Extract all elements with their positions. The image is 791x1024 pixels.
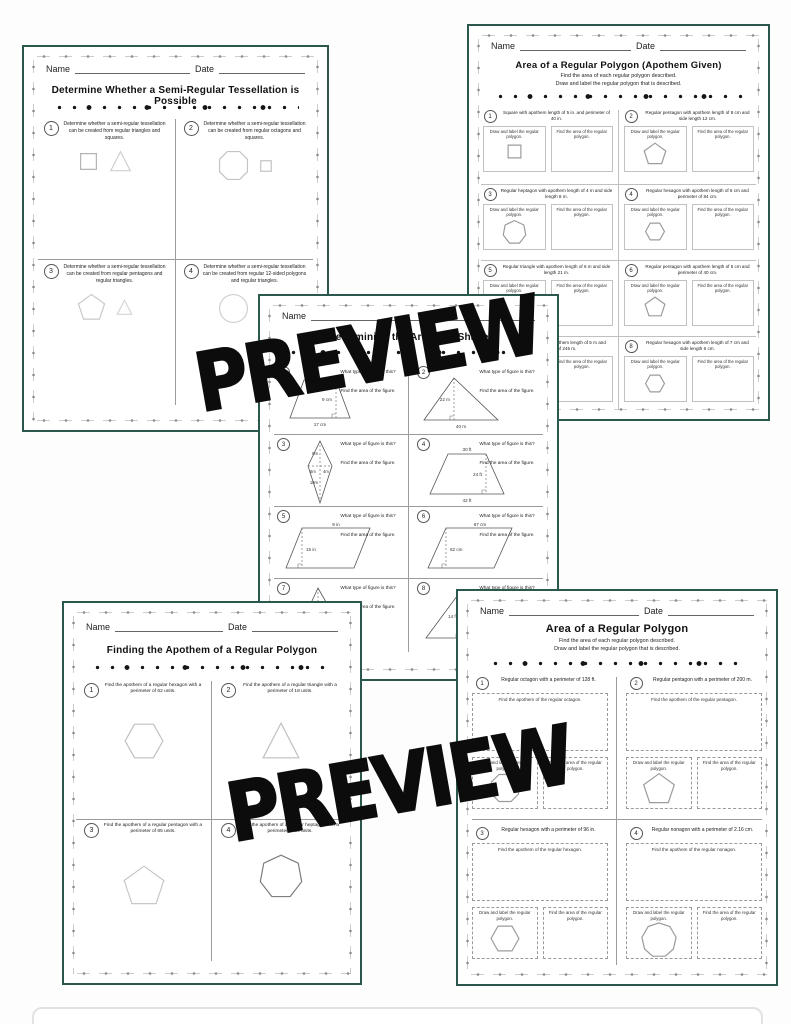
measure-label: 42 ft <box>463 498 473 503</box>
question-text: Square with apothem length of 5 in. and … <box>501 110 613 122</box>
pentagon-shape <box>77 293 106 322</box>
question-text: Regular hexagon with a perimeter of 96 i… <box>493 827 605 834</box>
next-page-edge <box>32 1007 763 1024</box>
shape-group <box>37 293 173 322</box>
question-number: 6 <box>625 264 638 277</box>
measure-label: 17 cm <box>314 422 327 427</box>
ornament-border-right <box>755 35 762 410</box>
dotted-divider <box>493 92 744 101</box>
pentagon-shape <box>643 142 667 166</box>
question-text: Regular hexagon with apothem length of 6… <box>642 188 754 200</box>
question-1: 1 Find the apothem of a regular hexagon … <box>76 683 211 815</box>
question-text: Determine whether a semi-regular tessell… <box>203 264 307 284</box>
question-3: 3 6m 6m 4m 10m What type of figure is th… <box>272 436 406 506</box>
find-box: Find the area of the regular polygon. <box>692 280 755 326</box>
question-text: Find the apothem of a regular pentagon w… <box>103 823 203 836</box>
name-date-row: Name Date <box>86 621 338 632</box>
name-date-row: Name Date <box>491 40 746 51</box>
draw-label: Draw and label the regular polygon. <box>629 359 682 370</box>
page-title: Area of a Regular Polygon <box>472 623 762 635</box>
question-number: 4 <box>625 188 638 201</box>
apothem-label: Find the apothem of the regular nonagon. <box>627 847 761 852</box>
date-blank-line <box>668 605 754 616</box>
heptagon-shape <box>258 854 304 900</box>
ornament-border-bottom <box>467 971 767 978</box>
apothem-box: Find the apothem of the regular hexagon. <box>472 843 608 901</box>
question-text: Regular triangle with apothem length of … <box>501 264 613 276</box>
type-question: What type of figure is this? <box>332 513 404 519</box>
draw-box: Draw and label the regular polygon. <box>624 280 687 326</box>
find-label: Find the area of the regular polygon. <box>697 359 750 370</box>
draw-box: Draw and label the regular polygon. <box>626 757 692 809</box>
page-subtitle-2: Draw and label the regular polygon that … <box>483 81 754 87</box>
square-shape <box>78 151 99 172</box>
draw-label: Draw and label the regular polygon. <box>477 910 533 921</box>
question-3: 3 Determine whether a semi-regular tesse… <box>37 264 173 398</box>
question-4: 4 Regular nonagon with a perimeter of 2.… <box>626 827 762 959</box>
draw-box: Draw and label the regular polygon. <box>624 204 687 250</box>
find-box: Find the area of the regular polygon. <box>543 907 609 959</box>
measure-label: 6m <box>312 451 318 456</box>
ornament-border-top <box>73 609 351 616</box>
measure-label: 24 ft <box>473 472 483 477</box>
find-label: Find the area of the regular polygon. <box>702 760 758 771</box>
question-text: Regular hexagon with apothem length of 7… <box>642 340 754 352</box>
pentagon-shape <box>122 864 166 908</box>
question-3: 3 Find the apothem of a regular pentagon… <box>76 823 211 955</box>
question-1: 1 Square with apothem length of 5 in. an… <box>481 110 615 172</box>
find-label: Find the area of the regular polygon. <box>556 207 609 218</box>
triangle-shape <box>109 150 132 173</box>
apothem-label: Find the apothem of the regular hexagon. <box>473 847 607 852</box>
question-number: 3 <box>484 188 497 201</box>
find-box: Find the area of the regular polygon. <box>551 356 614 402</box>
draw-box: Draw and label the regular polygon. <box>483 204 546 250</box>
ornament-border-top <box>33 53 318 60</box>
question-3: 3 Regular heptagon with apothem length o… <box>481 188 615 250</box>
question-4: 4 30 ft 24 ft 42 ft What type of figure … <box>412 436 545 506</box>
row-divider-2 <box>481 260 756 261</box>
hexagon-shape <box>643 373 667 394</box>
name-blank-line <box>115 621 223 632</box>
name-label: Name <box>480 606 504 616</box>
shape-group <box>37 150 173 173</box>
column-divider <box>175 119 176 405</box>
question-6: 6 67 cm 62 cm What type of figure is thi… <box>412 508 545 578</box>
question-number: 2 <box>625 110 638 123</box>
find-box: Find the area of the regular polygon. <box>692 126 755 172</box>
question-text: Regular octagon with a perimeter of 128 … <box>493 677 605 684</box>
find-question: Find the area of the figure. <box>471 388 543 394</box>
find-label: Find the area of the regular polygon. <box>697 129 750 140</box>
find-question: Find the area of the figure. <box>471 532 543 538</box>
question-text: Find the apothem of a regular triangle w… <box>240 683 340 696</box>
question-text: Determine whether a semi-regular tessell… <box>203 121 307 141</box>
question-text: Regular pentagon with apothem length of … <box>642 110 754 122</box>
question-number: 1 <box>84 683 99 698</box>
find-question: Find the area of the figure. <box>471 460 543 466</box>
ornament-border-top <box>467 597 767 604</box>
twelve-gon-shape <box>218 293 249 324</box>
question-5: 5 9 in 15 in What type of figure is this… <box>272 508 406 578</box>
find-box: Find the area of the regular polygon. <box>551 126 614 172</box>
column-divider <box>616 677 617 965</box>
question-text: Determine whether a semi-regular tessell… <box>63 121 167 141</box>
hexagon-shape <box>120 720 168 762</box>
row-divider <box>472 819 762 820</box>
measure-label: 10m <box>310 480 319 485</box>
row-divider <box>38 259 313 260</box>
find-label: Find the area of the regular polygon. <box>556 129 609 140</box>
type-question: What type of figure is this? <box>332 441 404 447</box>
name-label: Name <box>491 41 515 51</box>
question-number: 3 <box>476 827 489 840</box>
shape-group <box>177 150 313 181</box>
date-blank-line <box>219 63 305 74</box>
page-title: Finding the Apothem of a Regular Polygon <box>78 645 346 656</box>
name-blank-line <box>75 63 190 74</box>
question-text: Regular pentagon with apothem length of … <box>642 264 754 276</box>
question-text: Determine whether a semi-regular tessell… <box>63 264 167 284</box>
row-divider-3 <box>274 578 543 579</box>
measure-label: 62 cm <box>450 547 463 552</box>
question-number: 4 <box>630 827 643 840</box>
measure-label: 40 m <box>456 424 466 429</box>
ornament-border-bottom <box>73 970 351 977</box>
type-question: What type of figure is this? <box>332 585 404 591</box>
find-label: Find the area of the regular polygon. <box>702 910 758 921</box>
measure-label: 4m <box>323 469 329 474</box>
draw-label: Draw and label the regular polygon. <box>631 760 687 771</box>
find-box: Find the area of the regular polygon. <box>551 204 614 250</box>
question-6: 6 Regular pentagon with apothem length o… <box>622 264 756 326</box>
draw-label: Draw and label the regular polygon. <box>488 207 541 218</box>
draw-box: Draw and label the regular polygon. <box>472 907 538 959</box>
draw-box: Draw and label the regular polygon. <box>483 126 546 172</box>
apothem-label: Find the apothem of the regular octagon. <box>473 697 607 702</box>
column-divider <box>211 681 212 961</box>
row-divider-1 <box>481 184 756 185</box>
find-label: Find the area of the regular polygon. <box>556 283 609 294</box>
square-shape <box>259 159 273 173</box>
question-number: 3 <box>44 264 59 279</box>
question-1: 1 Determine whether a semi-regular tesse… <box>37 121 173 255</box>
find-box: Find the area of the regular polygon. <box>551 280 614 326</box>
apothem-label: Find the apothem of the regular pentagon… <box>627 697 761 702</box>
find-box: Find the area of the regular polygon. <box>697 757 763 809</box>
dotted-divider <box>52 103 299 112</box>
question-text: Regular pentagon with a perimeter of 200… <box>647 677 759 684</box>
measure-label: 22 m <box>440 397 450 402</box>
name-blank-line <box>509 605 639 616</box>
dotted-divider <box>90 663 334 672</box>
worksheet-preview-canvas: Name Date Determine Whether a Semi-Regul… <box>0 0 791 1024</box>
ornament-border-top <box>478 32 759 39</box>
type-question: What type of figure is this? <box>471 441 543 447</box>
question-number: 1 <box>476 677 489 690</box>
question-text: Find the apothem of a regular hexagon wi… <box>103 683 203 696</box>
draw-label: Draw and label the regular polygon. <box>629 283 682 294</box>
find-label: Find the area of the regular polygon. <box>548 910 604 921</box>
question-8: 8 Regular hexagon with apothem length of… <box>622 340 756 402</box>
name-blank-line <box>520 40 631 51</box>
find-box: Find the area of the regular polygon. <box>697 907 763 959</box>
question-number: 8 <box>625 340 638 353</box>
question-4: 4 Regular hexagon with apothem length of… <box>622 188 756 250</box>
find-box: Find the area of the regular polygon. <box>692 356 755 402</box>
find-question: Find the area of the figure. <box>332 460 404 466</box>
nonagon-shape <box>640 922 678 958</box>
question-2: 2 Regular pentagon with apothem length o… <box>622 110 756 172</box>
find-label: Find the area of the regular polygon. <box>697 207 750 218</box>
column-divider <box>408 364 409 652</box>
date-label: Date <box>636 41 655 51</box>
dotted-divider <box>488 659 746 668</box>
find-box: Find the area of the regular polygon. <box>692 204 755 250</box>
question-3: 3 Regular hexagon with a perimeter of 96… <box>472 827 608 959</box>
date-label: Date <box>195 64 214 74</box>
date-label: Date <box>644 606 663 616</box>
draw-label: Draw and label the regular polygon. <box>488 129 541 140</box>
question-number: 7 <box>277 582 290 595</box>
find-question: Find the area of the figure. <box>332 532 404 538</box>
pentagon-shape <box>644 296 666 318</box>
ornament-border-left <box>30 56 37 421</box>
heptagon-shape <box>502 220 527 245</box>
draw-box: Draw and label the regular polygon. <box>624 356 687 402</box>
page-subtitle-1: Find the area of each regular polygon de… <box>472 638 762 644</box>
name-label: Name <box>46 64 70 74</box>
question-number: 2 <box>221 683 236 698</box>
date-blank-line <box>252 621 338 632</box>
question-number: 3 <box>84 823 99 838</box>
draw-label: Draw and label the regular polygon. <box>629 129 682 140</box>
question-number: 1 <box>44 121 59 136</box>
measure-label: 6m <box>310 469 316 474</box>
pentagon-shape <box>642 772 676 806</box>
question-number: 5 <box>484 264 497 277</box>
find-label: Find the area of the regular polygon. <box>697 283 750 294</box>
page-subtitle-2: Draw and label the regular polygon that … <box>472 646 762 652</box>
date-blank-line <box>660 40 746 51</box>
question-number: 4 <box>184 264 199 279</box>
date-label: Date <box>228 622 247 632</box>
page-subtitle-1: Find the area of each regular polygon de… <box>483 73 754 79</box>
question-number: 3 <box>277 438 290 451</box>
question-number: 2 <box>184 121 199 136</box>
draw-label: Draw and label the regular polygon. <box>631 910 687 921</box>
draw-label: Draw and label the regular polygon. <box>629 207 682 218</box>
question-number: 1 <box>484 110 497 123</box>
name-date-row: Name Date <box>480 605 754 616</box>
apothem-box: Find the apothem of the regular pentagon… <box>626 693 762 751</box>
question-number: 2 <box>630 677 643 690</box>
ornament-border-right <box>763 600 770 975</box>
page-title: Area of a Regular Polygon (Apothem Given… <box>483 60 754 71</box>
hexagon-shape <box>643 221 667 242</box>
triangle-shape <box>116 299 133 316</box>
octagon-shape <box>218 150 249 181</box>
row-divider-1 <box>274 434 543 435</box>
name-label: Name <box>86 622 110 632</box>
question-2: 2 Regular pentagon with a perimeter of 2… <box>626 677 762 809</box>
question-text: Regular heptagon with apothem length of … <box>501 188 613 200</box>
type-question: What type of figure is this? <box>471 513 543 519</box>
draw-box: Draw and label the regular polygon. <box>624 126 687 172</box>
question-2: 2 Determine whether a semi-regular tesse… <box>177 121 313 255</box>
square-shape <box>506 143 523 160</box>
name-date-row: Name Date <box>46 63 305 74</box>
question-text: Regular nonagon with a perimeter of 2.16… <box>647 827 759 834</box>
measure-label: 15 in <box>306 547 316 552</box>
apothem-box: Find the apothem of the regular nonagon. <box>626 843 762 901</box>
find-label: Find the area of the regular polygon. <box>556 359 609 370</box>
hexagon-shape <box>487 923 523 954</box>
draw-box: Draw and label the regular polygon. <box>626 907 692 959</box>
